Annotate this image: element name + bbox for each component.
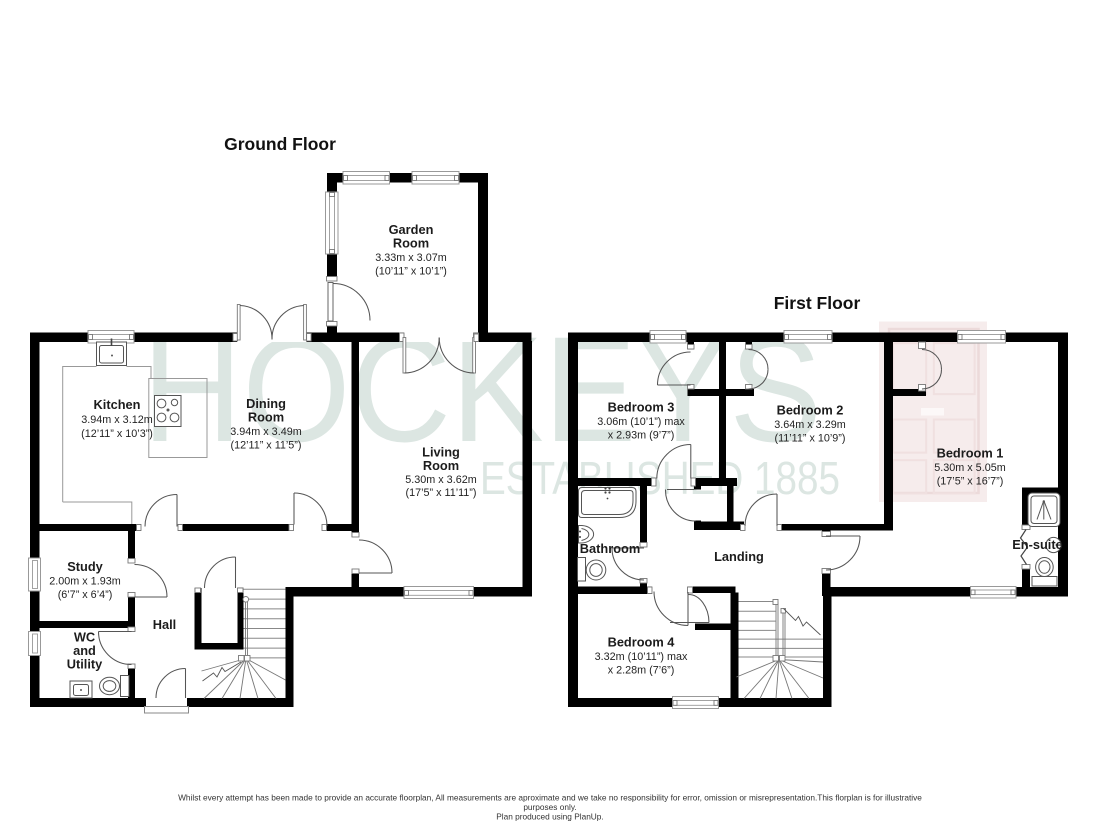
svg-text:(10’11” x 10’1”): (10’11” x 10’1”) bbox=[375, 266, 447, 278]
svg-text:Bedroom 3: Bedroom 3 bbox=[608, 400, 675, 415]
svg-text:First Floor: First Floor bbox=[774, 293, 861, 313]
svg-text:Room: Room bbox=[423, 458, 459, 473]
svg-text:x 2.28m (7’6”): x 2.28m (7’6”) bbox=[608, 665, 675, 677]
svg-text:purposes only.: purposes only. bbox=[523, 802, 576, 812]
svg-text:Utility: Utility bbox=[67, 657, 103, 672]
svg-text:3.32m (10’11”) max: 3.32m (10’11”) max bbox=[595, 651, 688, 663]
svg-text:3.33m x 3.07m: 3.33m x 3.07m bbox=[375, 252, 446, 264]
svg-text:x 2.93m (9’7”): x 2.93m (9’7”) bbox=[608, 430, 675, 442]
svg-text:(11’11” x 10’9”): (11’11” x 10’9”) bbox=[774, 433, 845, 445]
svg-text:(17’5” x 11’11”): (17’5” x 11’11”) bbox=[405, 487, 476, 499]
svg-text:Room: Room bbox=[248, 410, 284, 425]
svg-text:3.64m x 3.29m: 3.64m x 3.29m bbox=[774, 419, 845, 431]
svg-text:2.00m x 1.93m: 2.00m x 1.93m bbox=[49, 576, 120, 588]
svg-text:ESTABLISHED 1885: ESTABLISHED 1885 bbox=[480, 452, 840, 504]
svg-text:Landing: Landing bbox=[714, 549, 764, 564]
svg-text:Kitchen: Kitchen bbox=[94, 397, 141, 412]
svg-text:(12’11” x 11’5”): (12’11” x 11’5”) bbox=[230, 440, 301, 452]
svg-text:Hall: Hall bbox=[153, 617, 176, 632]
svg-text:Bedroom 2: Bedroom 2 bbox=[777, 403, 844, 418]
svg-text:Bathroom: Bathroom bbox=[580, 541, 640, 556]
svg-text:5.30m x 3.62m: 5.30m x 3.62m bbox=[405, 474, 476, 486]
svg-text:5.30m x 5.05m: 5.30m x 5.05m bbox=[934, 462, 1005, 474]
svg-text:3.06m (10’1”) max: 3.06m (10’1”) max bbox=[597, 416, 685, 428]
svg-text:3.94m x 3.12m: 3.94m x 3.12m bbox=[81, 414, 152, 426]
svg-text:Bedroom 4: Bedroom 4 bbox=[608, 635, 676, 650]
svg-text:Whilst every attempt has been: Whilst every attempt has been made to pr… bbox=[178, 793, 922, 803]
svg-text:3.94m x 3.49m: 3.94m x 3.49m bbox=[230, 426, 301, 438]
svg-text:(12’11” x 10’3”): (12’11” x 10’3”) bbox=[81, 428, 153, 440]
svg-text:(17’5” x 16’7”): (17’5” x 16’7”) bbox=[937, 476, 1004, 488]
svg-text:Study: Study bbox=[67, 559, 103, 574]
svg-text:Bedroom 1: Bedroom 1 bbox=[937, 446, 1004, 461]
svg-text:Ground Floor: Ground Floor bbox=[224, 134, 336, 154]
svg-text:Plan produced using PlanUp.: Plan produced using PlanUp. bbox=[496, 812, 603, 822]
svg-text:(6’7” x 6’4”): (6’7” x 6’4”) bbox=[58, 589, 113, 601]
svg-text:En-suite: En-suite bbox=[1012, 537, 1062, 552]
svg-text:Room: Room bbox=[393, 236, 429, 251]
